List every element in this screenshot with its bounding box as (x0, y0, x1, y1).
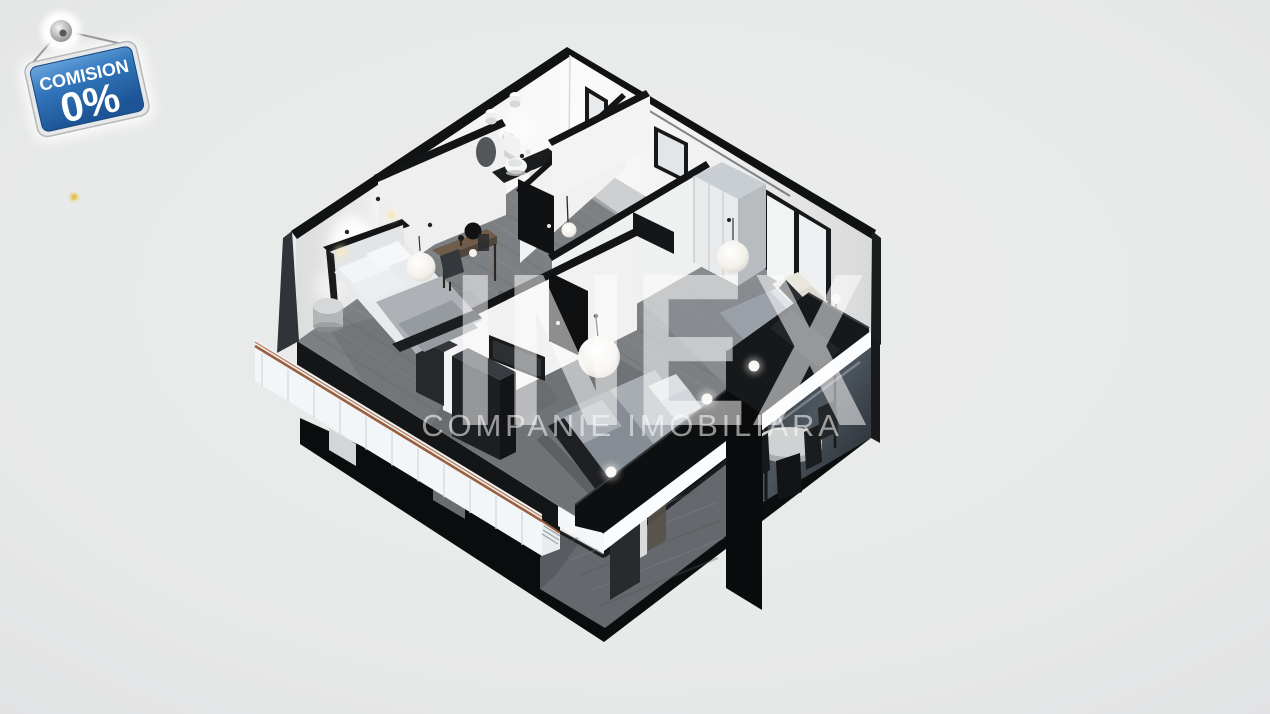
svg-text:COMPANIE IMOBILIARA: COMPANIE IMOBILIARA (421, 408, 842, 443)
